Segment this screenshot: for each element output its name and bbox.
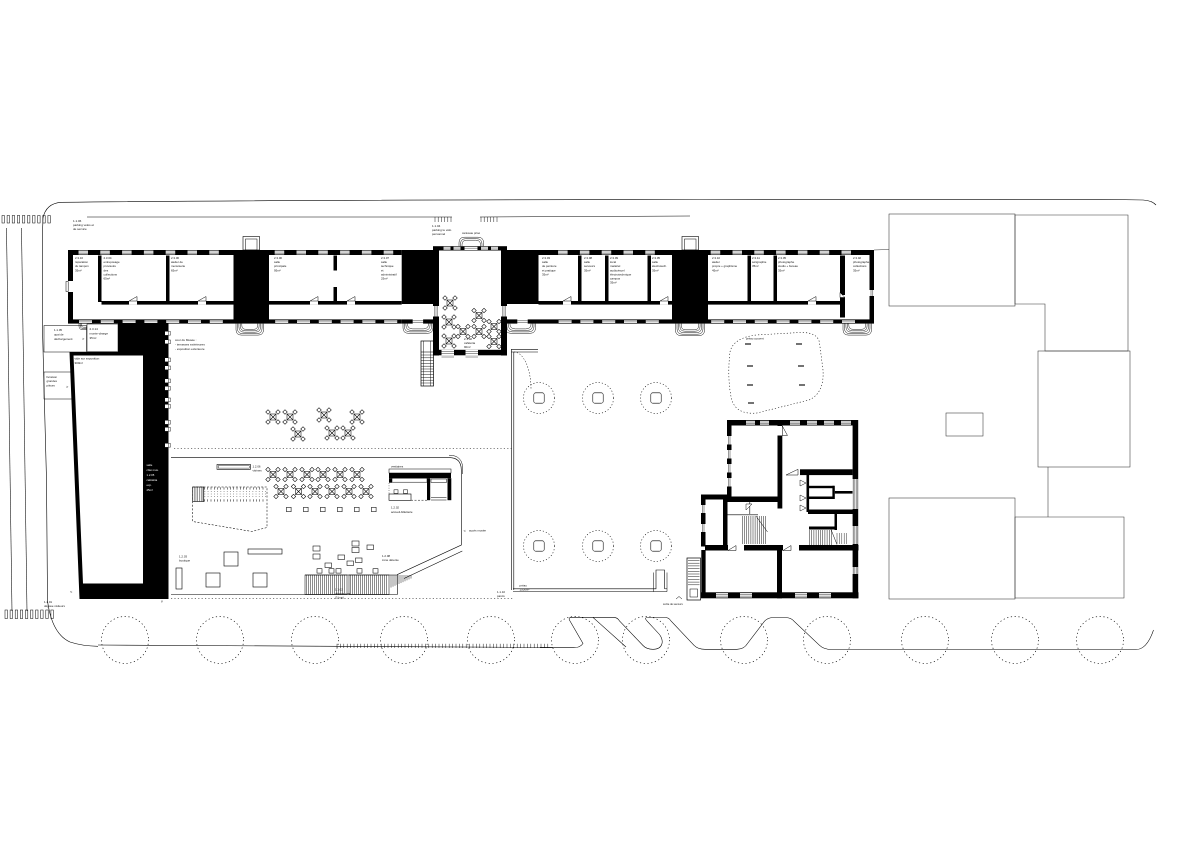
- svg-text:25m²: 25m²: [147, 488, 153, 492]
- svg-text:35m²: 35m²: [752, 264, 759, 268]
- svg-text:- exposition extérieure: - exposition extérieure: [175, 347, 205, 351]
- svg-text:côté mus.: côté mus.: [147, 468, 159, 472]
- svg-text:35m²: 35m²: [853, 268, 860, 272]
- svg-text:quai de: quai de: [54, 332, 64, 336]
- svg-text:dépose visiteurs: dépose visiteurs: [44, 604, 65, 608]
- svg-text:35m²: 35m²: [652, 268, 659, 272]
- svg-text:déchargement: déchargement: [54, 337, 73, 341]
- svg-text:45m²: 45m²: [712, 268, 719, 272]
- svg-text:1.2.05: 1.2.05: [147, 473, 155, 477]
- svg-text:35m²: 35m²: [90, 336, 97, 340]
- svg-text:1500m²: 1500m²: [520, 588, 530, 592]
- svg-text:monte-charge: monte-charge: [90, 332, 109, 336]
- svg-text:35m²: 35m²: [778, 268, 785, 272]
- svg-text:de service: de service: [73, 227, 87, 231]
- svg-text:préau couvert: préau couvert: [746, 337, 764, 341]
- svg-text:zone détente: zone détente: [382, 558, 399, 562]
- svg-text:boutique: boutique: [179, 559, 190, 563]
- svg-text:2.3.14: 2.3.14: [90, 327, 99, 331]
- svg-text:300m²: 300m²: [75, 361, 84, 365]
- svg-text:1.1.05: 1.1.05: [54, 328, 62, 332]
- svg-text:v: v: [161, 600, 163, 604]
- svg-text:personnel: personnel: [432, 232, 446, 236]
- svg-text:cafétéria: cafétéria: [147, 478, 158, 482]
- svg-text:65m²: 65m²: [171, 268, 178, 272]
- svg-text:caniveau prisé: caniveau prisé: [462, 231, 480, 235]
- svg-text:35m²: 35m²: [75, 268, 82, 272]
- svg-text:35m²: 35m²: [584, 268, 591, 272]
- svg-text:pièces: pièces: [47, 383, 56, 387]
- svg-text:sortie de secours: sortie de secours: [663, 602, 683, 606]
- svg-text:accès musée: accès musée: [469, 529, 486, 533]
- svg-text:(3 bus): (3 bus): [335, 595, 344, 599]
- svg-text:35m²: 35m²: [542, 272, 549, 276]
- svg-text:salle: salle: [147, 463, 153, 467]
- svg-text:65m²: 65m²: [104, 277, 111, 281]
- svg-text:accueil-billetterie: accueil-billetterie: [391, 510, 413, 514]
- svg-text:- terrasses extérieures: - terrasses extérieures: [175, 342, 205, 346]
- svg-text:1.2.02: 1.2.02: [391, 506, 399, 510]
- svg-text:exp.: exp.: [147, 483, 153, 487]
- svg-text:vitrines: vitrines: [253, 469, 263, 473]
- svg-text:35m²: 35m²: [610, 281, 617, 285]
- svg-text:parvis: parvis: [497, 594, 505, 598]
- svg-text:90m²: 90m²: [464, 345, 471, 349]
- svg-text:95m²: 95m²: [274, 268, 281, 272]
- svg-text:cour du Musée :: cour du Musée :: [175, 338, 197, 342]
- svg-text:25m²: 25m²: [381, 277, 388, 281]
- svg-text:vestiaires: vestiaires: [391, 465, 404, 469]
